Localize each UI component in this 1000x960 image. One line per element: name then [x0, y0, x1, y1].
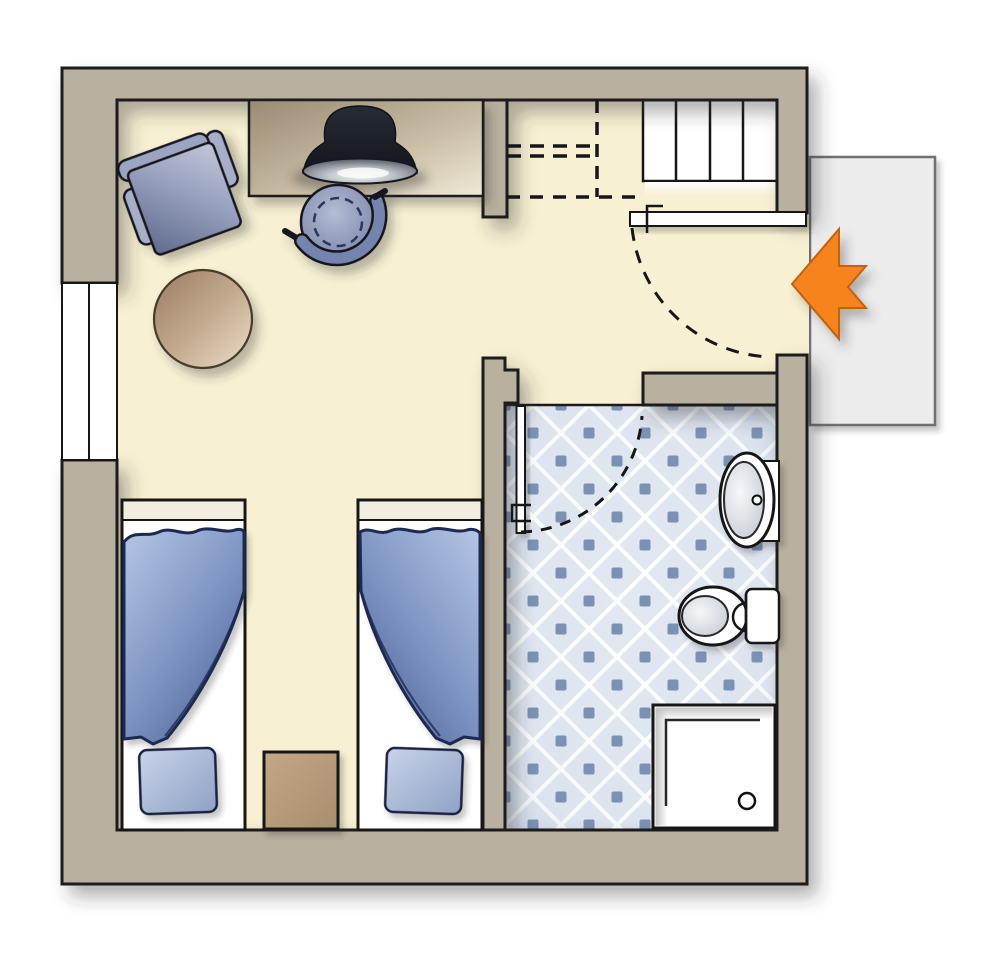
side-table — [154, 270, 252, 368]
shower-drain — [739, 793, 755, 809]
toilet — [679, 587, 779, 645]
pillow-left — [139, 748, 217, 815]
staircase — [643, 96, 777, 196]
bed-right — [358, 500, 482, 830]
shower-tray — [653, 705, 775, 828]
sink-faucet — [753, 496, 762, 505]
sink — [720, 453, 779, 547]
wall-partition-stub — [483, 100, 507, 217]
toilet-bowl-inner — [682, 596, 728, 636]
entrance-door-leaf — [630, 212, 806, 226]
bed-right-head-band — [360, 502, 480, 519]
shower — [653, 705, 775, 828]
bed-left — [122, 500, 245, 830]
toilet-tank — [746, 589, 779, 643]
shower-rim-top — [656, 708, 773, 720]
stair-landing-fade — [645, 182, 775, 196]
pillow-right — [385, 748, 463, 815]
bathroom-door-leaf — [517, 406, 526, 533]
nightstand — [264, 752, 338, 829]
floor-plan-canvas — [0, 0, 1000, 960]
window — [62, 283, 117, 460]
floor-plan-page — [0, 0, 1000, 960]
wall-bathroom-top — [643, 373, 777, 405]
lamp-rim-highlight — [337, 168, 389, 179]
bed-left-head-band — [124, 502, 243, 519]
